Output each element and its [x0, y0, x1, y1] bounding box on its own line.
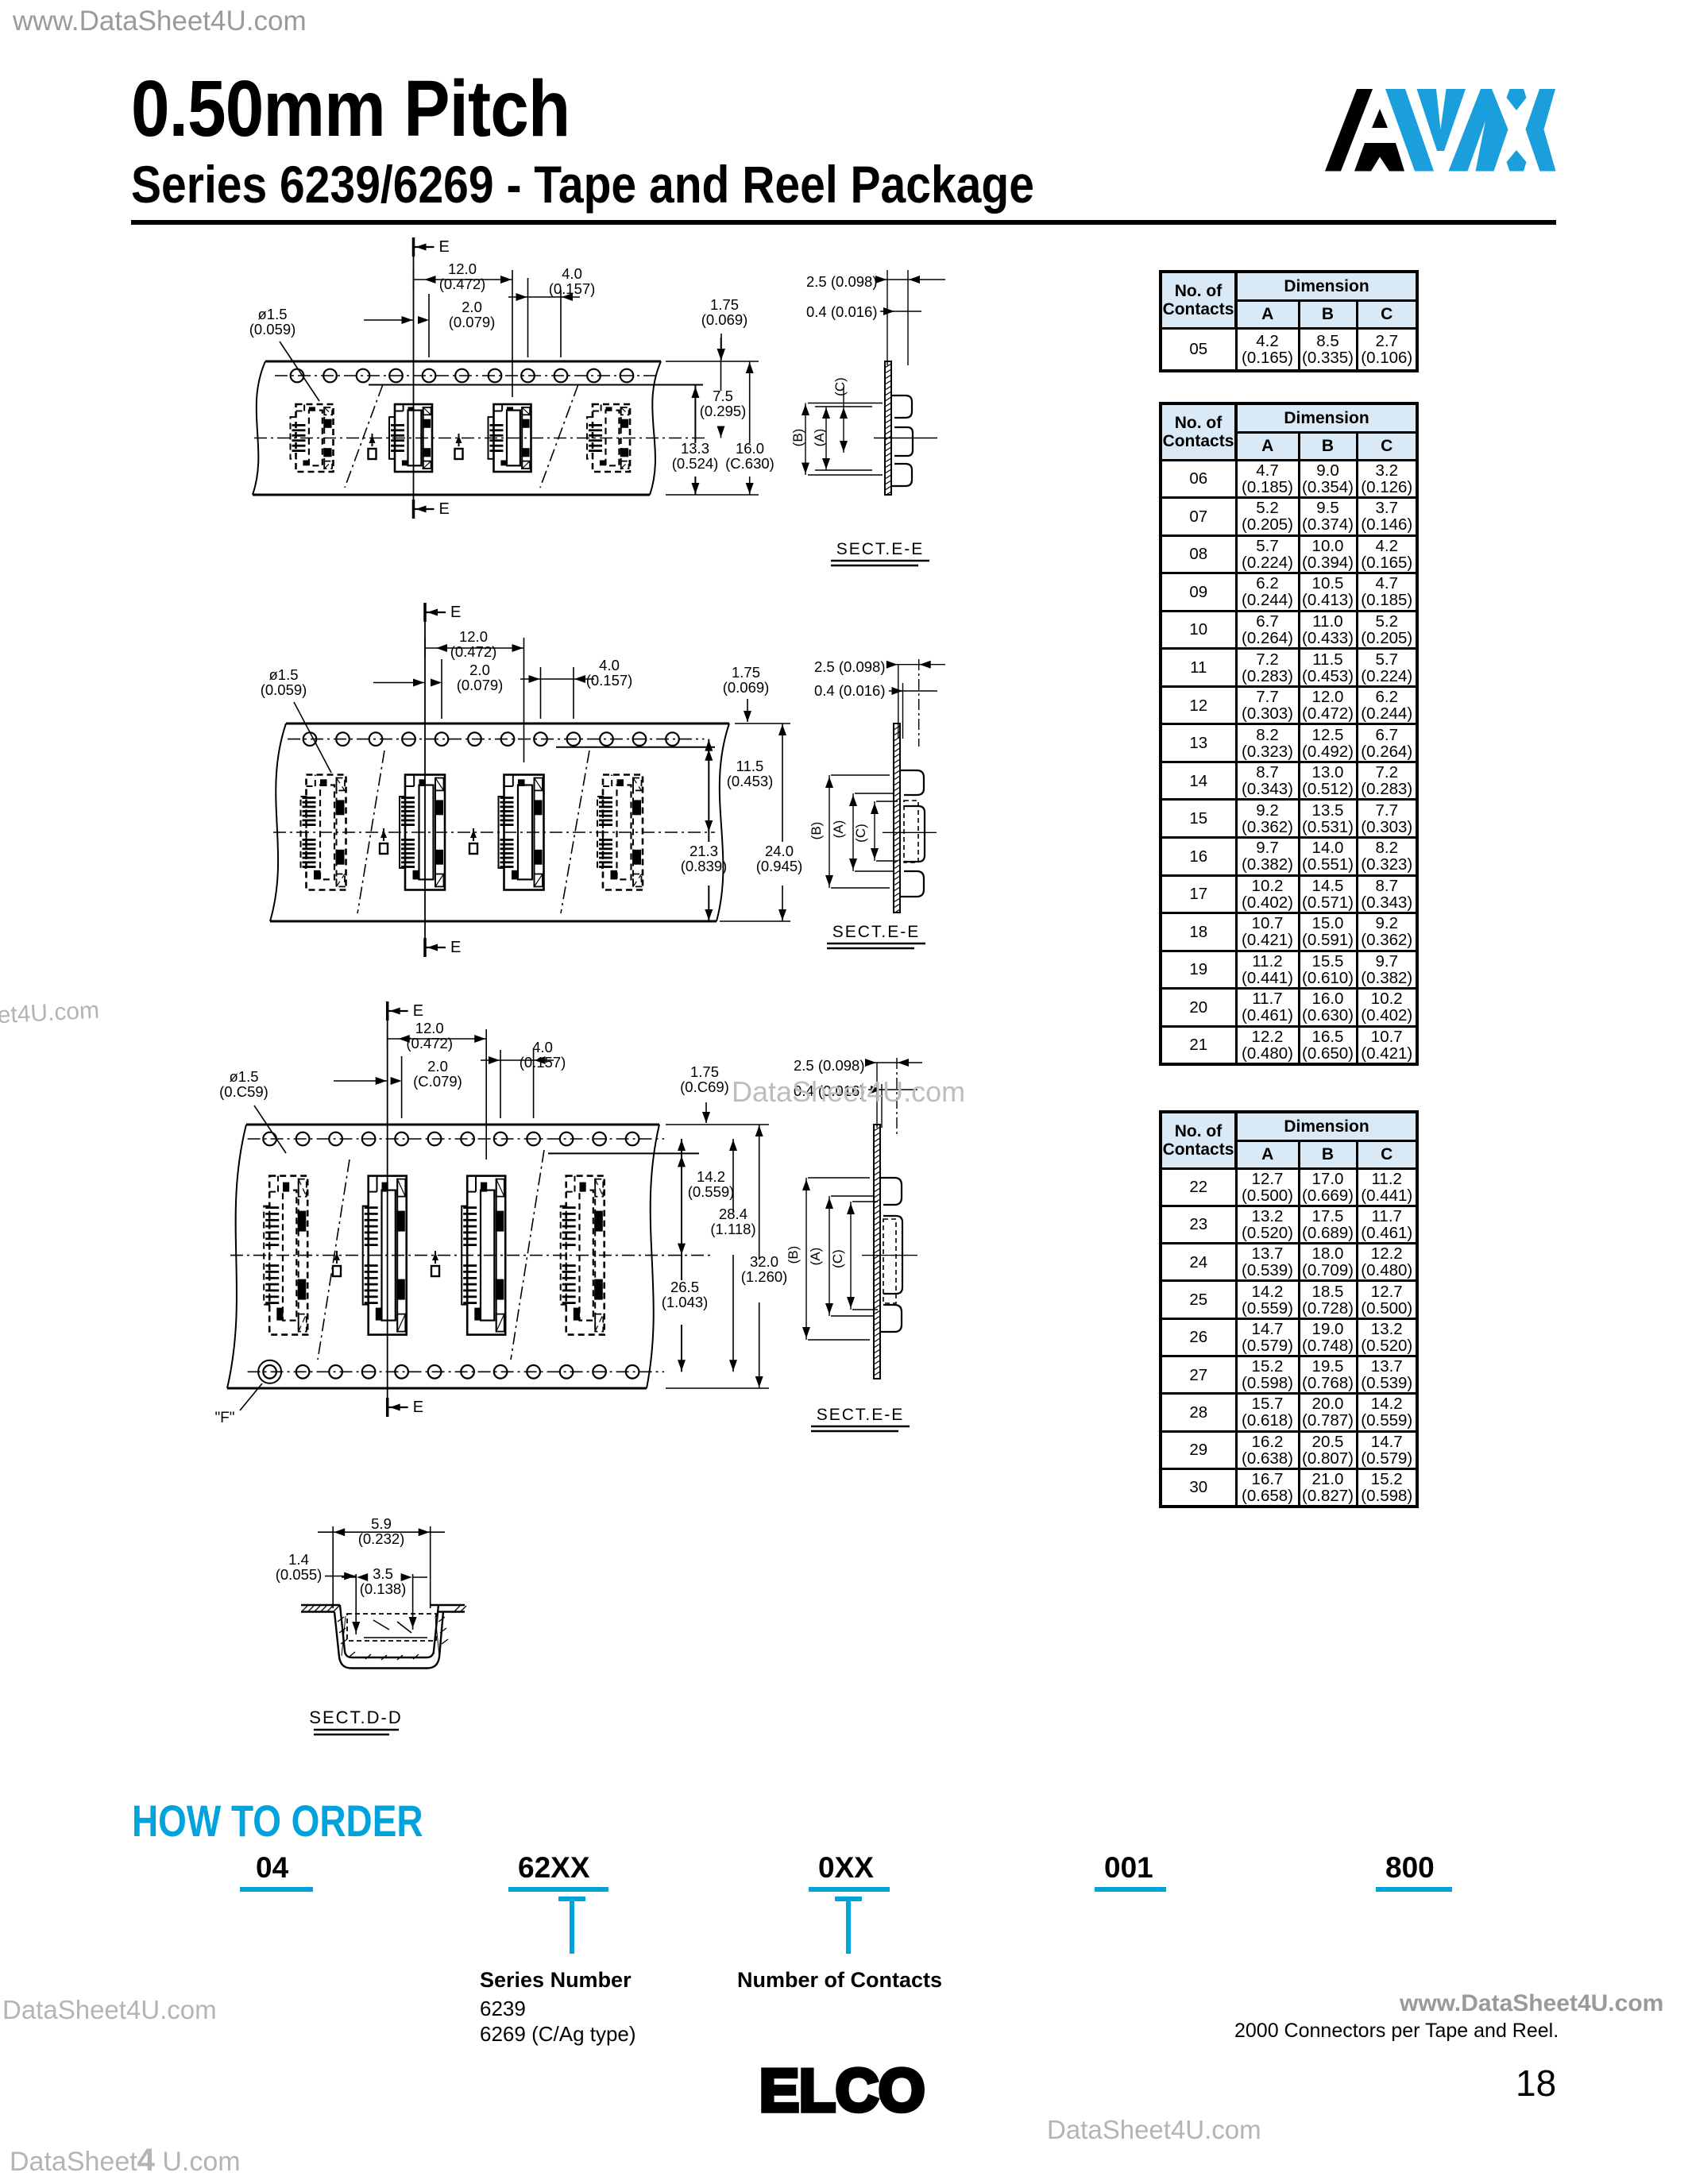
svg-text:(0.157): (0.157): [586, 672, 633, 689]
svg-text:1.4: 1.4: [288, 1551, 309, 1568]
svg-text:(A): (A): [812, 429, 827, 447]
svg-text:(0.472): (0.472): [439, 276, 486, 292]
svg-text:(0.524): (0.524): [672, 455, 719, 472]
svg-text:ELCO: ELCO: [759, 2062, 925, 2122]
svg-text:2.5 (0.098): 2.5 (0.098): [806, 273, 877, 290]
svg-text:"F": "F": [214, 1410, 234, 1426]
svg-text:SECT.E-E: SECT.E-E: [836, 540, 925, 558]
svg-text:24.0: 24.0: [765, 843, 794, 859]
svg-text:(0.C69): (0.C69): [680, 1078, 729, 1095]
svg-text:(0.839): (0.839): [681, 858, 728, 874]
svg-text:4.0: 4.0: [562, 265, 582, 282]
svg-text:ø1.5: ø1.5: [229, 1068, 258, 1085]
svg-text:(0.069): (0.069): [701, 311, 748, 328]
svg-text:4.0: 4.0: [532, 1039, 553, 1055]
svg-text:(C): (C): [853, 824, 868, 843]
svg-text:7.5: 7.5: [713, 388, 733, 404]
svg-text:(C.079): (C.079): [413, 1073, 462, 1090]
svg-text:2.0: 2.0: [462, 299, 482, 315]
svg-text:0.4 (0.016): 0.4 (0.016): [814, 682, 885, 699]
svg-text:(0.157): (0.157): [549, 280, 596, 297]
svg-text:ø1.5: ø1.5: [257, 306, 287, 322]
svg-text:16.0: 16.0: [736, 440, 764, 457]
svg-text:12.0: 12.0: [448, 260, 477, 277]
svg-text:(A): (A): [831, 820, 846, 839]
svg-text:E: E: [450, 604, 461, 621]
svg-text:2.5 (0.098): 2.5 (0.098): [794, 1057, 864, 1074]
svg-text:(1.260): (1.260): [741, 1268, 788, 1285]
svg-text:(0.945): (0.945): [756, 858, 803, 874]
svg-text:(0.559): (0.559): [688, 1183, 735, 1200]
svg-text:(B): (B): [809, 822, 824, 840]
svg-text:(0.453): (0.453): [727, 773, 774, 789]
svg-text:(0.157): (0.157): [520, 1054, 566, 1071]
svg-text:(0.059): (0.059): [249, 321, 296, 338]
svg-text:(B): (B): [786, 1246, 801, 1264]
svg-text:(0.472): (0.472): [406, 1035, 453, 1051]
svg-text:SECT.E-E: SECT.E-E: [832, 923, 921, 941]
svg-text:(C): (C): [832, 377, 848, 396]
svg-text:1.75: 1.75: [710, 296, 739, 313]
svg-text:(0.232): (0.232): [358, 1530, 405, 1547]
svg-text:E: E: [439, 238, 450, 256]
svg-text:1.75: 1.75: [732, 664, 760, 681]
svg-text:E: E: [413, 1002, 423, 1020]
svg-text:(0.059): (0.059): [261, 681, 307, 698]
svg-text:(0.472): (0.472): [450, 643, 497, 660]
svg-text:2.0: 2.0: [427, 1058, 448, 1075]
svg-text:21.3: 21.3: [689, 843, 718, 859]
svg-text:E: E: [450, 939, 461, 956]
svg-text:SECT.D-D: SECT.D-D: [309, 1707, 402, 1727]
svg-text:(B): (B): [790, 429, 805, 447]
svg-text:(C): (C): [830, 1249, 845, 1268]
svg-text:(1.118): (1.118): [710, 1221, 755, 1237]
svg-text:(0.295): (0.295): [700, 403, 747, 419]
svg-text:(C.630): (C.630): [725, 455, 774, 472]
svg-text:0.4 (0.016): 0.4 (0.016): [806, 303, 877, 320]
svg-text:SECT.E-E: SECT.E-E: [817, 1406, 905, 1424]
svg-text:(0.079): (0.079): [449, 314, 496, 330]
svg-text:E: E: [439, 500, 450, 518]
svg-text:4.0: 4.0: [599, 657, 620, 673]
svg-text:2.5 (0.098): 2.5 (0.098): [814, 658, 885, 675]
svg-text:1.75: 1.75: [690, 1063, 719, 1080]
svg-text:12.0: 12.0: [415, 1020, 444, 1036]
svg-text:(0.055): (0.055): [276, 1566, 323, 1583]
svg-text:26.5: 26.5: [670, 1279, 699, 1295]
svg-text:(0.069): (0.069): [723, 679, 770, 696]
svg-text:(1.043): (1.043): [662, 1294, 709, 1310]
svg-text:E: E: [413, 1399, 423, 1416]
svg-text:(0.079): (0.079): [457, 677, 504, 693]
svg-text:13.3: 13.3: [681, 440, 709, 457]
svg-text:11.5: 11.5: [736, 758, 764, 774]
svg-text:32.0: 32.0: [750, 1253, 778, 1270]
svg-text:5.9: 5.9: [371, 1515, 392, 1532]
svg-text:14.2: 14.2: [697, 1168, 725, 1185]
svg-text:12.0: 12.0: [459, 628, 488, 645]
svg-text:2.0: 2.0: [469, 662, 490, 678]
svg-text:ø1.5: ø1.5: [268, 666, 298, 683]
svg-text:(0.138): (0.138): [360, 1580, 407, 1597]
svg-text:3.5: 3.5: [373, 1565, 393, 1582]
svg-text:(A): (A): [808, 1248, 823, 1266]
svg-text:(0.C59): (0.C59): [219, 1083, 268, 1100]
